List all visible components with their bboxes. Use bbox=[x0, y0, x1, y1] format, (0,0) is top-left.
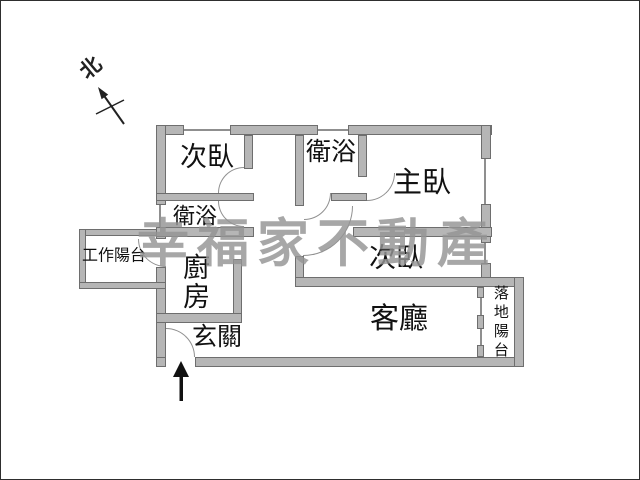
floor-plan: 次臥 衛浴 主臥 衛浴 工作陽台 廚房 次臥 客廳 玄關 落地陽台 幸福家不動產… bbox=[0, 0, 640, 480]
wall-segment bbox=[358, 135, 367, 177]
window bbox=[184, 129, 230, 131]
wall-segment bbox=[156, 313, 242, 323]
room-label-secondary-bedroom-top: 次臥 bbox=[180, 143, 234, 171]
sliding-door-panel bbox=[477, 287, 484, 298]
wall-segment bbox=[156, 357, 166, 367]
wall-segment bbox=[295, 277, 524, 287]
wall-segment bbox=[481, 125, 491, 159]
room-label-entryway: 玄關 bbox=[192, 325, 242, 351]
north-arrow-icon bbox=[86, 76, 136, 131]
room-label-master-bedroom: 主臥 bbox=[393, 168, 451, 198]
door-arc bbox=[367, 173, 395, 201]
wall-segment bbox=[514, 277, 524, 367]
wall-segment bbox=[230, 125, 318, 135]
wall-segment bbox=[244, 135, 253, 169]
sliding-door-panel bbox=[477, 345, 484, 357]
wall-segment bbox=[348, 125, 492, 135]
wall-segment bbox=[331, 193, 367, 201]
wall-segment bbox=[195, 357, 524, 367]
window bbox=[318, 129, 348, 131]
watermark: 幸福家不動產 bbox=[137, 202, 497, 277]
wall-segment bbox=[156, 193, 254, 201]
entrance-arrow-icon bbox=[169, 361, 195, 403]
wall-segment bbox=[295, 135, 304, 206]
door-arc bbox=[166, 328, 195, 357]
room-label-master-bathroom: 衛浴 bbox=[306, 140, 356, 166]
window bbox=[484, 159, 486, 204]
room-label-landing-balcony: 落地陽台 bbox=[491, 285, 507, 361]
sliding-door-panel bbox=[477, 315, 484, 329]
wall-segment bbox=[79, 282, 166, 289]
room-label-living-room: 客廳 bbox=[370, 304, 428, 334]
